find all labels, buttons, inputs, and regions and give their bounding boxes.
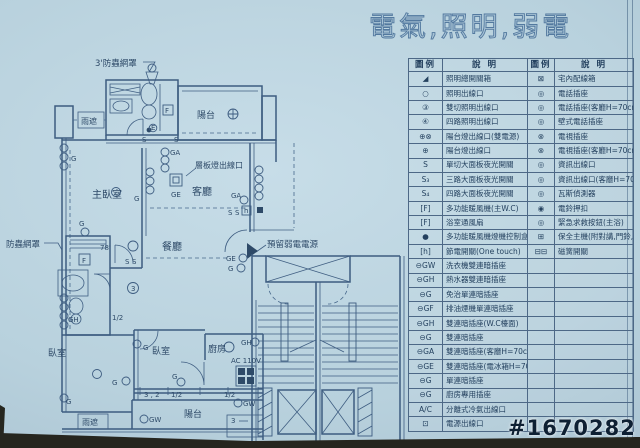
legend-row: ⊖G廚房專用插座 (409, 388, 634, 402)
room-label-living: 客廳 (192, 185, 212, 198)
plan-symbol-label: G (143, 344, 148, 352)
legend-symbol: ◎ (528, 172, 555, 186)
legend-header-desc: 說 明 (443, 59, 528, 72)
legend-description (555, 259, 634, 273)
legend-description: 宅內配線箱 (555, 72, 634, 86)
legend-header-symbol: 圖例 (528, 59, 555, 72)
legend-symbol: ⊞ (528, 230, 555, 244)
legend-symbol: ⊗ (528, 129, 555, 143)
legend-description (555, 273, 634, 287)
scanned-blueprint-photo: 電氣,照明,弱電 (0, 0, 640, 448)
plan-symbol-label: GA (231, 192, 241, 200)
plan-symbol-label: 3 (131, 285, 135, 293)
legend-symbol (528, 402, 555, 416)
legend-symbol: [F] (409, 216, 443, 230)
room-label-dining: 餐廳 (162, 240, 182, 253)
legend-description: 電視插座(客廳H=70cm) (555, 144, 634, 158)
legend-symbol: A/C (409, 402, 443, 416)
legend-description: 照明總開關箱 (443, 72, 528, 86)
room-label-rain-bottom: 雨遮 (82, 417, 98, 427)
plan-symbol-label: GE (226, 255, 236, 263)
legend-symbol: ⊗ (528, 144, 555, 158)
legend-row: ○照明出線口◎電話插座 (409, 86, 634, 100)
room-label-rain-top: 雨遮 (81, 116, 97, 126)
plan-symbol-label: GW (149, 416, 161, 424)
legend-row: ⊖GA雙連暗插座(客廳H=70cm) (409, 345, 634, 359)
legend-description: 瓦斯偵測器 (555, 187, 634, 201)
legend-description: 雙切照明出線口 (443, 101, 528, 115)
legend-row: ⊖G雙連暗插座 (409, 331, 634, 345)
plan-symbol-label: G (134, 195, 139, 203)
annotation-screen-left: 防蟲網罩 (6, 239, 41, 250)
legend-description (555, 374, 634, 388)
legend-symbol: ⊖G (409, 374, 443, 388)
legend-row: ◢照明總開關箱⊠宅內配線箱 (409, 72, 634, 86)
legend-description: 保全主機(附對講,門鈴,緊急求救) (555, 230, 634, 244)
legend-symbol: ◎ (528, 158, 555, 172)
plan-symbol-label: GH (68, 316, 79, 324)
legend-row: [h]節電開關(One touch)⊟⊟磁簧開關 (409, 244, 634, 258)
plan-symbol-label: G (66, 398, 71, 406)
plan-symbol-label: 3 (231, 417, 235, 425)
legend-header-row: 圖例 說 明 圖例 說 明 (409, 59, 634, 72)
legend-symbol: ⊖GE (409, 359, 443, 373)
leader-line (44, 243, 62, 250)
legend-symbol: ⊖GH (409, 273, 443, 287)
legend-description: 雙連暗插座(電冰箱H=70cm) (443, 359, 528, 373)
legend-description: 照明出線口 (443, 86, 528, 100)
legend-row: ④四路照明出線口◎壁式電話插座 (409, 115, 634, 129)
legend-row: ⊖GF排油煙機單連暗插座 (409, 302, 634, 316)
legend-description (555, 316, 634, 330)
legend-description: 免治單連暗插座 (443, 287, 528, 301)
legend-symbol: [h] (409, 244, 443, 258)
legend-description (555, 359, 634, 373)
legend-description: 陽台燈出線口 (443, 144, 528, 158)
legend-row: S₃三路大面板夜光開關◎資訊出線口(客廳H=70cm) (409, 172, 634, 186)
room-label-bedroom2: 臥室 (152, 345, 170, 357)
legend-symbol: ③ (409, 101, 443, 115)
legend-row: ⊕陽台燈出線口⊗電視插座(客廳H=70cm) (409, 144, 634, 158)
legend-symbol (528, 273, 555, 287)
legend-description: 壁式電話插座 (555, 115, 634, 129)
annotation-ac-voltage: AC 110V (231, 357, 261, 365)
stair-core (252, 254, 404, 443)
legend-row: ⊖GE雙連暗插座(電冰箱H=70cm) (409, 359, 634, 373)
plan-symbol-label: S (235, 209, 240, 217)
legend-row: ⊖G免治單連暗插座 (409, 287, 634, 301)
legend-description: 多功能暖風機(主W.C) (443, 201, 528, 215)
legend-description: 陽台燈出線口(雙電源) (443, 129, 528, 143)
legend-symbol: ○ (409, 86, 443, 100)
plan-symbol-label: G (71, 155, 76, 163)
legend-description: 電話插座 (555, 86, 634, 100)
legend-description: 電話插座(客廳H=70cm) (555, 101, 634, 115)
plan-symbol-label: S (174, 136, 179, 144)
legend-symbol: ⊕ (409, 144, 443, 158)
plan-symbol-label: F (165, 107, 169, 115)
legend-description (555, 287, 634, 301)
top-balcony (106, 86, 294, 228)
plan-symbol-label: G (228, 265, 233, 273)
legend-symbol: ◎ (528, 101, 555, 115)
legend-row: ③雙切照明出線口◎電話插座(客廳H=70cm) (409, 101, 634, 115)
legend-description (555, 388, 634, 402)
legend-header-desc: 說 明 (555, 59, 634, 72)
plan-symbol-label: E (151, 124, 155, 132)
plan-symbol-label: S (228, 209, 233, 217)
legend-description: 磁簧開關 (555, 244, 634, 258)
legend-description: 四路大面板夜光開關 (443, 187, 528, 201)
plan-symbol-label: GH (241, 339, 252, 347)
legend-description: 廚房專用插座 (443, 388, 528, 402)
plan-symbol-label: GE (171, 191, 181, 199)
legend-symbol: ⊖GW (409, 259, 443, 273)
outlet-symbols (60, 144, 263, 423)
room-label-master-bedroom: 主臥室 (92, 188, 122, 201)
legend-symbol (528, 259, 555, 273)
legend-symbol (528, 316, 555, 330)
room-label-balcony-bottom: 陽台 (184, 408, 202, 420)
legend-description: 雙連暗插座(W.C檯面) (443, 316, 528, 330)
legend-symbol (528, 359, 555, 373)
legend-description: 資訊出線口 (555, 158, 634, 172)
legend-symbol (528, 388, 555, 402)
legend-symbol: ◎ (528, 187, 555, 201)
room-label-balcony-top: 陽台 (197, 109, 215, 121)
legend-description: 電視插座 (555, 129, 634, 143)
legend-description: 排油煙機單連暗插座 (443, 302, 528, 316)
legend-header-symbol: 圖例 (409, 59, 443, 72)
plan-symbol-label: 1/2 (224, 391, 235, 399)
legend-description: 雙連暗插座 (443, 331, 528, 345)
legend-symbol: ⊖G (409, 287, 443, 301)
plan-symbol-label: G (79, 220, 84, 228)
legend-symbol: ⊖G (409, 331, 443, 345)
legend-symbol (528, 287, 555, 301)
legend-symbol (528, 374, 555, 388)
legend-description (555, 345, 634, 359)
legend-description: 多功能暖風機燈機控制盒 (443, 230, 528, 244)
legend-row: ⊖G單連暗插座 (409, 374, 634, 388)
legend-symbol (528, 345, 555, 359)
legend-description (555, 402, 634, 416)
legend-description: 雙連暗插座(客廳H=70cm) (443, 345, 528, 359)
legend-row: [F]多功能暖風機(主W.C)◉電鈴押扣 (409, 201, 634, 215)
plan-symbol-label: S (142, 136, 147, 144)
plan-symbol-label: S (132, 258, 137, 266)
legend-symbol: ⊖G (409, 388, 443, 402)
interior-walls (70, 135, 294, 330)
room-label-kitchen: 廚房 (208, 343, 226, 355)
legend-symbol: ④ (409, 115, 443, 129)
legend-row: S單切大面板夜光開關◎資訊出線口 (409, 158, 634, 172)
plan-symbol-label: GA (170, 149, 180, 157)
legend-symbol: S₃ (409, 172, 443, 186)
legend-symbol (528, 302, 555, 316)
legend-symbol: ◢ (409, 72, 443, 86)
legend-row: A/C分離式冷氣出線口 (409, 402, 634, 416)
legend-description: 浴室通風扇 (443, 216, 528, 230)
legend-description: 四路照明出線口 (443, 115, 528, 129)
legend-symbol: [F] (409, 201, 443, 215)
plan-symbol-label: G (112, 379, 117, 387)
legend-symbol: ⊕⊗ (409, 129, 443, 143)
legend-description: 電鈴押扣 (555, 201, 634, 215)
plan-symbol-label: G (172, 373, 177, 381)
legend-row: S₄四路大面板夜光開關◎瓦斯偵測器 (409, 187, 634, 201)
legend-symbol: ◎ (528, 115, 555, 129)
legend-description: 洗衣機雙連暗插座 (443, 259, 528, 273)
legend-description: 緊急求救按鈕(主浴) (555, 216, 634, 230)
legend-row: ●多功能暖風機燈機控制盒⊞保全主機(附對講,門鈴,緊急求救) (409, 230, 634, 244)
legend-description: 單切大面板夜光開關 (443, 158, 528, 172)
legend-symbol: ⊟⊟ (528, 244, 555, 258)
legend-description: 三路大面板夜光開關 (443, 172, 528, 186)
plan-symbol-label: GW (243, 400, 255, 408)
living-symbols (170, 168, 263, 252)
legend-symbol: ◎ (528, 216, 555, 230)
annotation-shelf-light: 層板燈出線口 (195, 160, 243, 170)
legend-symbol: ◎ (528, 86, 555, 100)
legend-description: 分離式冷氣出線口 (443, 402, 528, 416)
legend-table: 圖例 說 明 圖例 說 明 ◢照明總開關箱⊠宅內配線箱○照明出線口◎電話插座③雙… (408, 58, 634, 432)
legend-row: ⊖GW洗衣機雙連暗插座 (409, 259, 634, 273)
plan-symbol-label: h (244, 207, 248, 215)
plan-symbol-label: F (82, 257, 86, 265)
legend-symbol: ◉ (528, 201, 555, 215)
legend-description: 熱水器雙連暗插座 (443, 273, 528, 287)
legend-symbol: ⊡ (409, 417, 443, 432)
legend-symbol: ⊖GH (409, 316, 443, 330)
legend-symbol: S₄ (409, 187, 443, 201)
legend-symbol: ⊖GF (409, 302, 443, 316)
legend-row: ⊖GH熱水器雙連暗插座 (409, 273, 634, 287)
annotation-reserved-power: 預留弱電電源 (267, 239, 319, 250)
legend-row: [F]浴室通風扇◎緊急求救按鈕(主浴) (409, 216, 634, 230)
legend-description: 單連暗插座 (443, 374, 528, 388)
watermark: #1670282 (508, 416, 636, 440)
annotation-screen-top: 3'防蟲網罩 (95, 58, 137, 69)
top-bathroom (106, 64, 178, 135)
legend-symbol: ⊖GA (409, 345, 443, 359)
plan-symbol-label: 3 , 2 (144, 391, 160, 399)
legend-row: ⊕⊗陽台燈出線口(雙電源)⊗電視插座 (409, 129, 634, 143)
legend-symbol: ⊠ (528, 72, 555, 86)
plan-symbol-label: S (125, 258, 130, 266)
legend-description: 節電開關(One touch) (443, 244, 528, 258)
room-label-bedroom1: 臥室 (48, 347, 66, 359)
legend-description: 資訊出線口(客廳H=70cm) (555, 172, 634, 186)
legend-symbol: ● (409, 230, 443, 244)
plan-symbol-label: 78' (100, 244, 111, 252)
legend-description (555, 331, 634, 345)
plan-symbol-label: 1/2 (171, 391, 182, 399)
plan-symbol-label: 1/2 (112, 314, 123, 322)
legend-symbol: S (409, 158, 443, 172)
legend-description (555, 302, 634, 316)
legend-symbol (528, 331, 555, 345)
legend-row: ⊖GH雙連暗插座(W.C檯面) (409, 316, 634, 330)
